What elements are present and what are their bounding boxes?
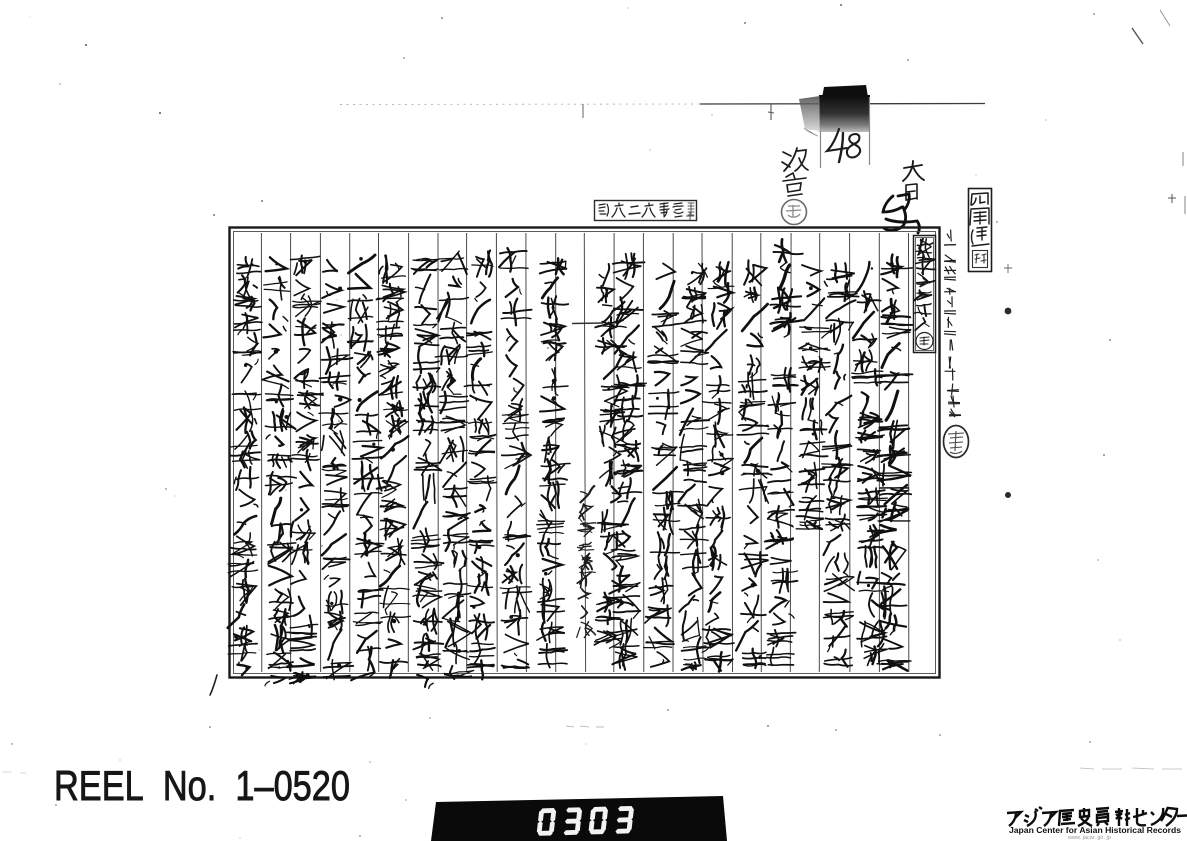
svg-text:REEL No. 1–0520: REEL No. 1–0520 — [54, 762, 350, 809]
svg-text:Japan Center for Asian Histori: Japan Center for Asian Historical Record… — [1009, 826, 1182, 835]
svg-text:www. jacar. go. jp: www. jacar. go. jp — [1067, 835, 1111, 841]
